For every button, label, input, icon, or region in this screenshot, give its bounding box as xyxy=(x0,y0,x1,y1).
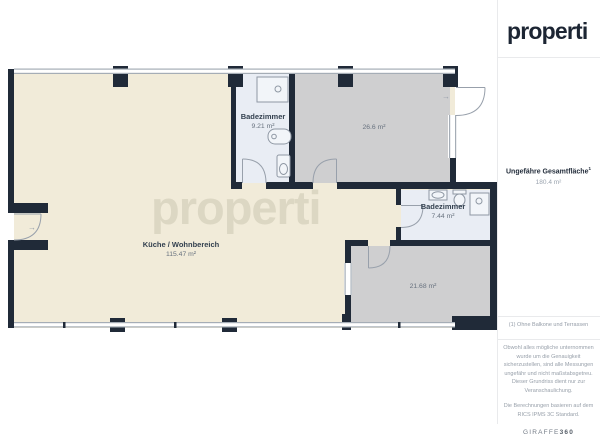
room-area: 21.68 m² xyxy=(410,283,437,291)
room-label-top-right: 26.6 m² xyxy=(362,123,385,132)
total-area-label: Ungefähre Gesamtfläche1 xyxy=(497,166,600,175)
disclaimer-measurements: Obwohl alles mögliche unternommen wurde … xyxy=(501,344,596,395)
total-area-block: Ungefähre Gesamtfläche1 180.4 m² xyxy=(497,166,600,186)
sidebar-divider xyxy=(497,0,498,424)
room-label-badezimmer-right: Badezimmer 7.44 m² xyxy=(421,203,466,220)
giraffe360-logo-name: GIRAFFE xyxy=(523,429,560,436)
room-name: Badezimmer xyxy=(241,113,286,122)
toilet-top xyxy=(277,155,290,177)
disclaimer-standard: Die Berechnungen basieren auf dem RICS I… xyxy=(501,402,596,419)
room-area: 115.47 m² xyxy=(143,251,220,259)
total-area-label-text: Ungefähre Gesamtfläche xyxy=(506,168,588,175)
room-area: 26.6 m² xyxy=(362,124,385,132)
total-area-value: 180.4 m² xyxy=(497,179,600,186)
watermark: properti xyxy=(151,184,321,231)
properti-logo: properti xyxy=(507,20,588,43)
entrance-arrow-icon: → xyxy=(28,223,36,232)
toilet-right-tank xyxy=(453,190,466,194)
room-name: Badezimmer xyxy=(421,203,466,212)
room-label-bottom-right: 21.68 m² xyxy=(410,282,437,291)
footnote-text: (1) Ohne Balkone und Terrassen xyxy=(497,322,600,328)
room-area: 9.21 m² xyxy=(241,123,286,131)
room-label-badezimmer-top: Badezimmer 9.21 m² xyxy=(241,113,286,130)
room-name: Küche / Wohnbereich xyxy=(143,241,220,250)
shower-top xyxy=(257,77,288,102)
sidebar-rule-mid-2 xyxy=(498,339,600,340)
exterior-door-top-right xyxy=(456,88,485,116)
total-area-footnote-marker: 1 xyxy=(588,166,591,171)
floorplan-page: → → properti Badezimmer 9.21 m² 26.6 m² xyxy=(0,0,600,424)
giraffe360-logo: GIRAFFE360 xyxy=(501,428,596,438)
room-area: 7.44 m² xyxy=(421,213,466,221)
room-label-kueche-wohnbereich: Küche / Wohnbereich 115.47 m² xyxy=(143,241,220,258)
exterior-door-arrow-icon: → xyxy=(442,92,450,101)
giraffe360-logo-suffix: 360 xyxy=(560,429,574,436)
sidebar-rule-top xyxy=(498,57,600,58)
sidebar-rule-mid-1 xyxy=(498,316,600,317)
